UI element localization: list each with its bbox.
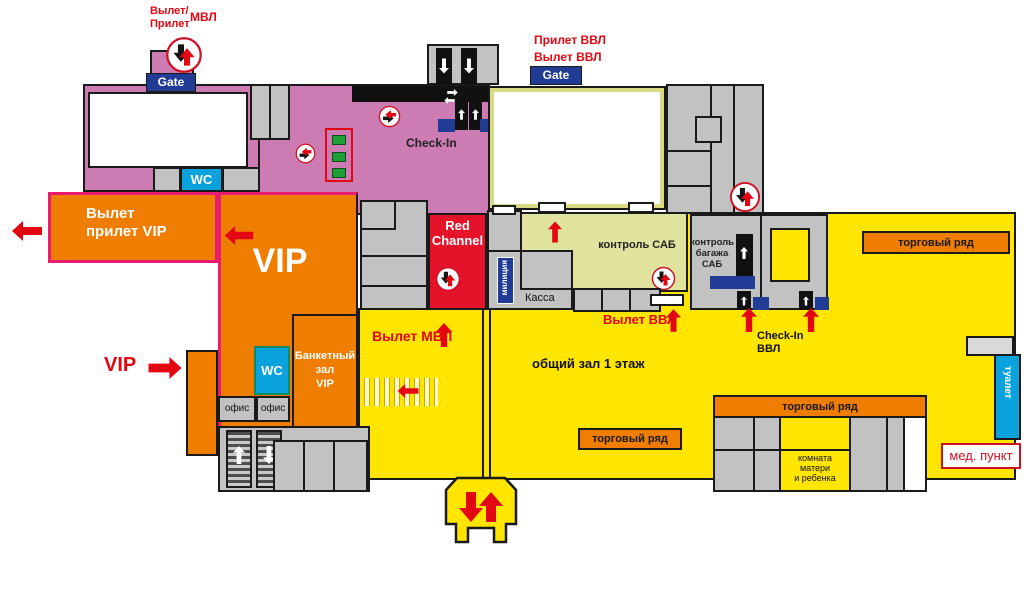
equipment-blue <box>438 119 455 132</box>
hall-divider-wall <box>482 310 491 478</box>
door <box>650 294 684 306</box>
trade-row-right-label: торговый ряд <box>898 237 974 249</box>
door <box>492 205 516 215</box>
wc-gates-label: WC <box>191 172 213 187</box>
common-hall-label: общий зал 1 этаж <box>532 357 645 372</box>
terminal-floor-plan: WC Вылет/ Прилет МВЛ Gate Check-In Приле… <box>0 0 1024 593</box>
banquet-label-line1: Банкетный <box>292 350 358 362</box>
xray-belt <box>710 276 755 289</box>
office-1-label: офис <box>225 403 249 414</box>
escalator-up-arrow-icon <box>472 108 479 121</box>
mvl-departure-up-arrow-icon <box>436 322 452 348</box>
flow-left-right-circle-icon <box>378 105 401 128</box>
service-room <box>153 167 181 192</box>
wall <box>303 440 305 492</box>
service-cell <box>966 336 1014 356</box>
checkin-vvl-label-line1: Check-In <box>757 330 803 342</box>
booth-green <box>332 168 346 178</box>
mother-room-label-line1: комната <box>779 453 851 463</box>
baggage-belt <box>352 86 492 102</box>
office-2-label: офис <box>261 403 285 414</box>
mvl-waiting-room <box>88 92 248 168</box>
gate-mvl-badge: Gate <box>146 73 196 92</box>
banquet-label-line3: VIP <box>292 378 358 390</box>
wall <box>760 214 762 310</box>
scanner-up-arrow-icon <box>740 246 748 260</box>
red-channel-label-line2: Channel <box>428 234 487 249</box>
trade-row-bottom-label: торговый ряд <box>782 401 858 413</box>
wall <box>520 250 522 290</box>
checkin-vvl-up-arrow-icon <box>803 307 819 333</box>
vvl-arrival-label: Прилет ВВЛ <box>534 34 606 47</box>
lift-down-arrow-icon <box>439 58 449 74</box>
med-point-label: мед. пункт <box>949 448 1012 463</box>
trade-row-center: торговый ряд <box>578 428 682 450</box>
wall <box>629 288 631 312</box>
wc-vip-label: WC <box>261 363 283 378</box>
booth-green <box>332 152 346 162</box>
office-room-2: офис <box>256 396 290 422</box>
vip-entrance-label: VIP <box>104 354 136 376</box>
lift-down-arrow-icon <box>464 58 474 74</box>
vip-entrance-strip <box>186 350 218 456</box>
checkin-vvl-up-arrow-icon <box>741 307 757 333</box>
door <box>538 202 566 213</box>
gate-mvl-label: Gate <box>158 75 185 89</box>
wall <box>360 285 428 287</box>
vip-exit-label-line2: прилет VIP <box>86 224 167 241</box>
wall <box>666 185 712 187</box>
service-cell <box>903 416 927 492</box>
service-cells-row <box>573 288 661 312</box>
wc-gates-room: WC <box>180 167 223 192</box>
flow-left-right-circle-icon <box>295 143 316 164</box>
wc-vip-room: WC <box>254 346 290 395</box>
service-cell <box>713 449 755 492</box>
gate-vvl-badge: Gate <box>530 66 582 85</box>
service-cell <box>487 210 522 252</box>
service-room <box>222 167 260 192</box>
escalator-up-arrow-icon <box>458 108 465 121</box>
security-yellow-cell <box>770 228 810 282</box>
wall <box>520 288 573 290</box>
trade-row-right: торговый ряд <box>862 231 1010 254</box>
vip-entrance-right-arrow-icon <box>148 357 182 379</box>
service-cells <box>273 440 368 492</box>
vip-exit-label-line1: Вылет <box>86 206 134 223</box>
stairs-up-arrow-icon <box>233 444 245 466</box>
banquet-label-line2: зал <box>292 364 358 376</box>
kassa-label: Касса <box>525 292 555 304</box>
scanner-up-arrow-icon <box>741 296 747 306</box>
wall <box>779 449 851 451</box>
wall <box>666 150 712 152</box>
trade-row-bottom: торговый ряд <box>713 395 927 418</box>
trade-row-center-label: торговый ряд <box>592 433 668 445</box>
mvl-gate-label-line2: Прилет <box>150 18 190 30</box>
toilet-label: туалет <box>1002 366 1013 399</box>
sab-up-arrow-icon <box>548 221 562 243</box>
service-cell <box>849 416 888 492</box>
wall <box>394 200 396 228</box>
gate-vvl-label: Gate <box>543 68 570 82</box>
vvl-departure-label: Вылет ВВЛ <box>534 51 602 64</box>
wall <box>710 84 712 214</box>
arrive-depart-updown-circle-icon <box>165 36 203 74</box>
arrive-depart-updown-circle-icon <box>435 266 461 292</box>
wall <box>360 255 428 257</box>
booth-green <box>332 135 346 145</box>
mvl-gate-label-line1: Вылет/ <box>150 5 189 17</box>
checkin-vvl-label-line2: ВВЛ <box>757 343 780 355</box>
militia-badge: милиция <box>497 257 514 304</box>
med-point-box: мед. пункт <box>941 443 1021 469</box>
vvl-waiting-room <box>488 86 666 210</box>
main-entrance <box>444 476 518 544</box>
red-channel-label-line1: Red <box>428 219 487 234</box>
checkin-label: Check-In <box>406 137 457 150</box>
service-cell <box>695 116 722 143</box>
militia-label: милиция <box>501 260 510 295</box>
toilet-room: туалет <box>994 354 1021 440</box>
wall <box>601 288 603 312</box>
service-cell <box>753 416 781 451</box>
service-cell <box>753 449 781 492</box>
wall <box>269 84 271 140</box>
vvl-departure-up-arrow-icon <box>666 309 681 332</box>
service-cell <box>713 416 755 451</box>
vip-exit-left-arrow-icon <box>12 221 42 241</box>
belt-right-arrow-icon <box>446 89 459 96</box>
mvl-label: МВЛ <box>190 11 217 24</box>
wall <box>333 440 335 492</box>
mother-room-label-line3: и ребенка <box>779 473 851 483</box>
mother-room-label-line2: матери <box>779 463 851 473</box>
arrive-depart-updown-circle-icon <box>729 181 761 213</box>
sab-control-label: контроль САБ <box>572 239 702 251</box>
wall <box>360 228 396 230</box>
queue-left-arrow-icon <box>394 384 422 398</box>
vip-zone-label: VIP <box>230 242 330 280</box>
door <box>628 202 654 213</box>
scanner-up-arrow-icon <box>803 296 809 306</box>
office-room-1: офис <box>218 396 256 422</box>
baggage-label-line3: САБ <box>688 260 736 271</box>
